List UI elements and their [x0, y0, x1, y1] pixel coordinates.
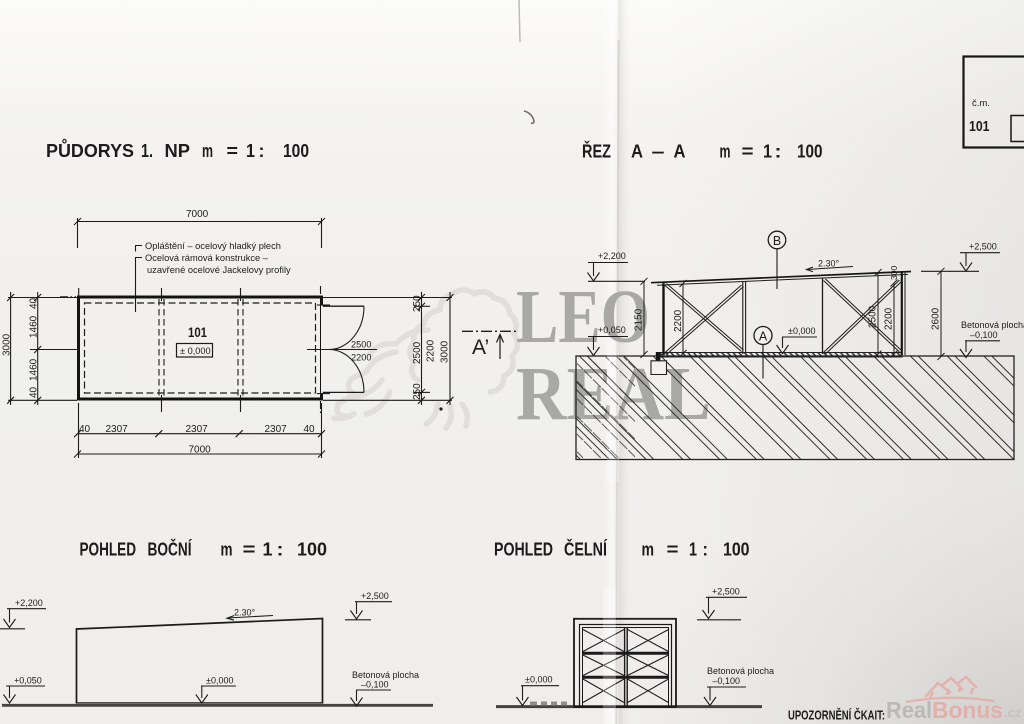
svg-text:2600: 2600 — [931, 307, 942, 330]
svg-text:100: 100 — [297, 538, 327, 559]
svg-text:=: = — [227, 140, 239, 161]
svg-text:+0,050: +0,050 — [14, 676, 42, 686]
svg-text:100: 100 — [283, 140, 309, 161]
svg-text:Real: Real — [886, 697, 932, 723]
svg-text:2.30°: 2.30° — [818, 259, 840, 269]
svg-text:101: 101 — [188, 324, 207, 340]
svg-text:č.m.: č.m. — [972, 98, 990, 109]
svg-text:1460: 1460 — [29, 358, 40, 381]
svg-text:2150: 2150 — [634, 308, 645, 331]
svg-text:2307: 2307 — [265, 424, 288, 435]
svg-text:300: 300 — [889, 265, 899, 280]
svg-text:1.: 1. — [141, 140, 153, 161]
svg-text:Betonová plocha: Betonová plocha — [961, 320, 1024, 330]
svg-text:40: 40 — [304, 424, 316, 435]
svg-text:1: 1 — [689, 539, 697, 560]
svg-text::: : — [277, 538, 284, 559]
svg-text:2200: 2200 — [351, 353, 371, 363]
svg-text:=: = — [243, 538, 256, 559]
svg-text::: : — [775, 141, 782, 162]
svg-text:Opláštění – ocelový hladký p: Opláštění – ocelový hladký plech — [145, 241, 281, 251]
svg-text:2500: 2500 — [868, 305, 879, 328]
svg-text:2500: 2500 — [412, 341, 423, 364]
svg-text:101: 101 — [969, 119, 990, 135]
svg-text:ČELNÍ: ČELNÍ — [564, 539, 608, 560]
svg-text:1: 1 — [263, 538, 273, 559]
svg-text:=: = — [742, 141, 754, 162]
svg-text:2200: 2200 — [673, 309, 684, 332]
svg-text:ŘEZ: ŘEZ — [582, 141, 611, 162]
svg-text::: : — [259, 140, 265, 161]
svg-text:+2,500: +2,500 — [361, 591, 389, 601]
svg-text:40: 40 — [29, 386, 40, 398]
svg-text:B: B — [773, 234, 781, 248]
svg-text:7000: 7000 — [189, 445, 212, 456]
svg-text:A: A — [631, 141, 643, 162]
svg-text:A: A — [759, 330, 768, 344]
svg-text:250: 250 — [412, 383, 423, 400]
svg-text::: : — [703, 539, 709, 560]
svg-text:m: m — [221, 538, 233, 559]
svg-text:1460: 1460 — [29, 315, 40, 338]
svg-text:2.30°: 2.30° — [234, 608, 256, 618]
svg-text:NP: NP — [165, 140, 191, 161]
svg-text:2307: 2307 — [186, 424, 209, 435]
svg-text:A: A — [674, 141, 686, 162]
svg-text:± 0,000: ± 0,000 — [180, 346, 211, 356]
svg-text:.cz: .cz — [1004, 705, 1022, 720]
svg-text:1: 1 — [246, 140, 255, 161]
svg-text:±0,000: ±0,000 — [525, 675, 552, 685]
svg-text:+2,500: +2,500 — [712, 587, 740, 597]
svg-text:+0,050: +0,050 — [598, 325, 626, 335]
svg-text:POHLED: POHLED — [80, 538, 137, 559]
svg-text:UPOZORNĚNÍ ČKAIT:: UPOZORNĚNÍ ČKAIT: — [788, 708, 885, 723]
svg-text:m: m — [642, 539, 655, 560]
svg-text:2200: 2200 — [426, 339, 437, 362]
svg-text:PŮDORYS: PŮDORYS — [46, 139, 134, 161]
svg-text:A’: A’ — [472, 336, 489, 359]
svg-text:BOČNÍ: BOČNÍ — [148, 538, 193, 559]
svg-text:Bonus: Bonus — [932, 697, 1003, 723]
svg-text:1: 1 — [763, 141, 772, 162]
svg-text:uzavřené ocelové Jackelovy pro: uzavřené ocelové Jackelovy profily — [147, 265, 291, 275]
svg-text:250: 250 — [412, 295, 423, 312]
svg-text:+2,200: +2,200 — [15, 598, 43, 608]
svg-text:–0,100: –0,100 — [713, 676, 741, 686]
svg-text:–0,100: –0,100 — [970, 330, 998, 340]
svg-text:=: = — [667, 539, 679, 560]
svg-text:Ocelová rámová konstrukce –: Ocelová rámová konstrukce – — [145, 253, 269, 263]
svg-text:±0,000: ±0,000 — [206, 676, 233, 686]
svg-text:100: 100 — [797, 141, 823, 162]
svg-text:3000: 3000 — [2, 333, 13, 356]
svg-text:LEO: LEO — [516, 275, 650, 359]
svg-text:Betonová plocha: Betonová plocha — [352, 670, 419, 680]
svg-text:100: 100 — [723, 539, 750, 560]
svg-text:2200: 2200 — [884, 307, 895, 330]
svg-text:m: m — [202, 140, 213, 161]
svg-text:40: 40 — [29, 297, 40, 309]
svg-text:±0,000: ±0,000 — [788, 326, 815, 336]
svg-text:40: 40 — [79, 424, 91, 435]
svg-text:–: – — [652, 141, 665, 162]
svg-text:POHLED: POHLED — [494, 539, 553, 560]
svg-text:+2,500: +2,500 — [969, 242, 997, 252]
svg-text:m: m — [720, 141, 731, 162]
svg-text:–0,100: –0,100 — [361, 680, 389, 690]
svg-text:Betonová plocha: Betonová plocha — [707, 666, 774, 676]
svg-text:7000: 7000 — [186, 209, 209, 220]
svg-text:2307: 2307 — [106, 424, 129, 435]
svg-text:3000: 3000 — [440, 340, 451, 363]
svg-text:2500: 2500 — [351, 340, 371, 350]
svg-text:+2,200: +2,200 — [598, 251, 626, 261]
